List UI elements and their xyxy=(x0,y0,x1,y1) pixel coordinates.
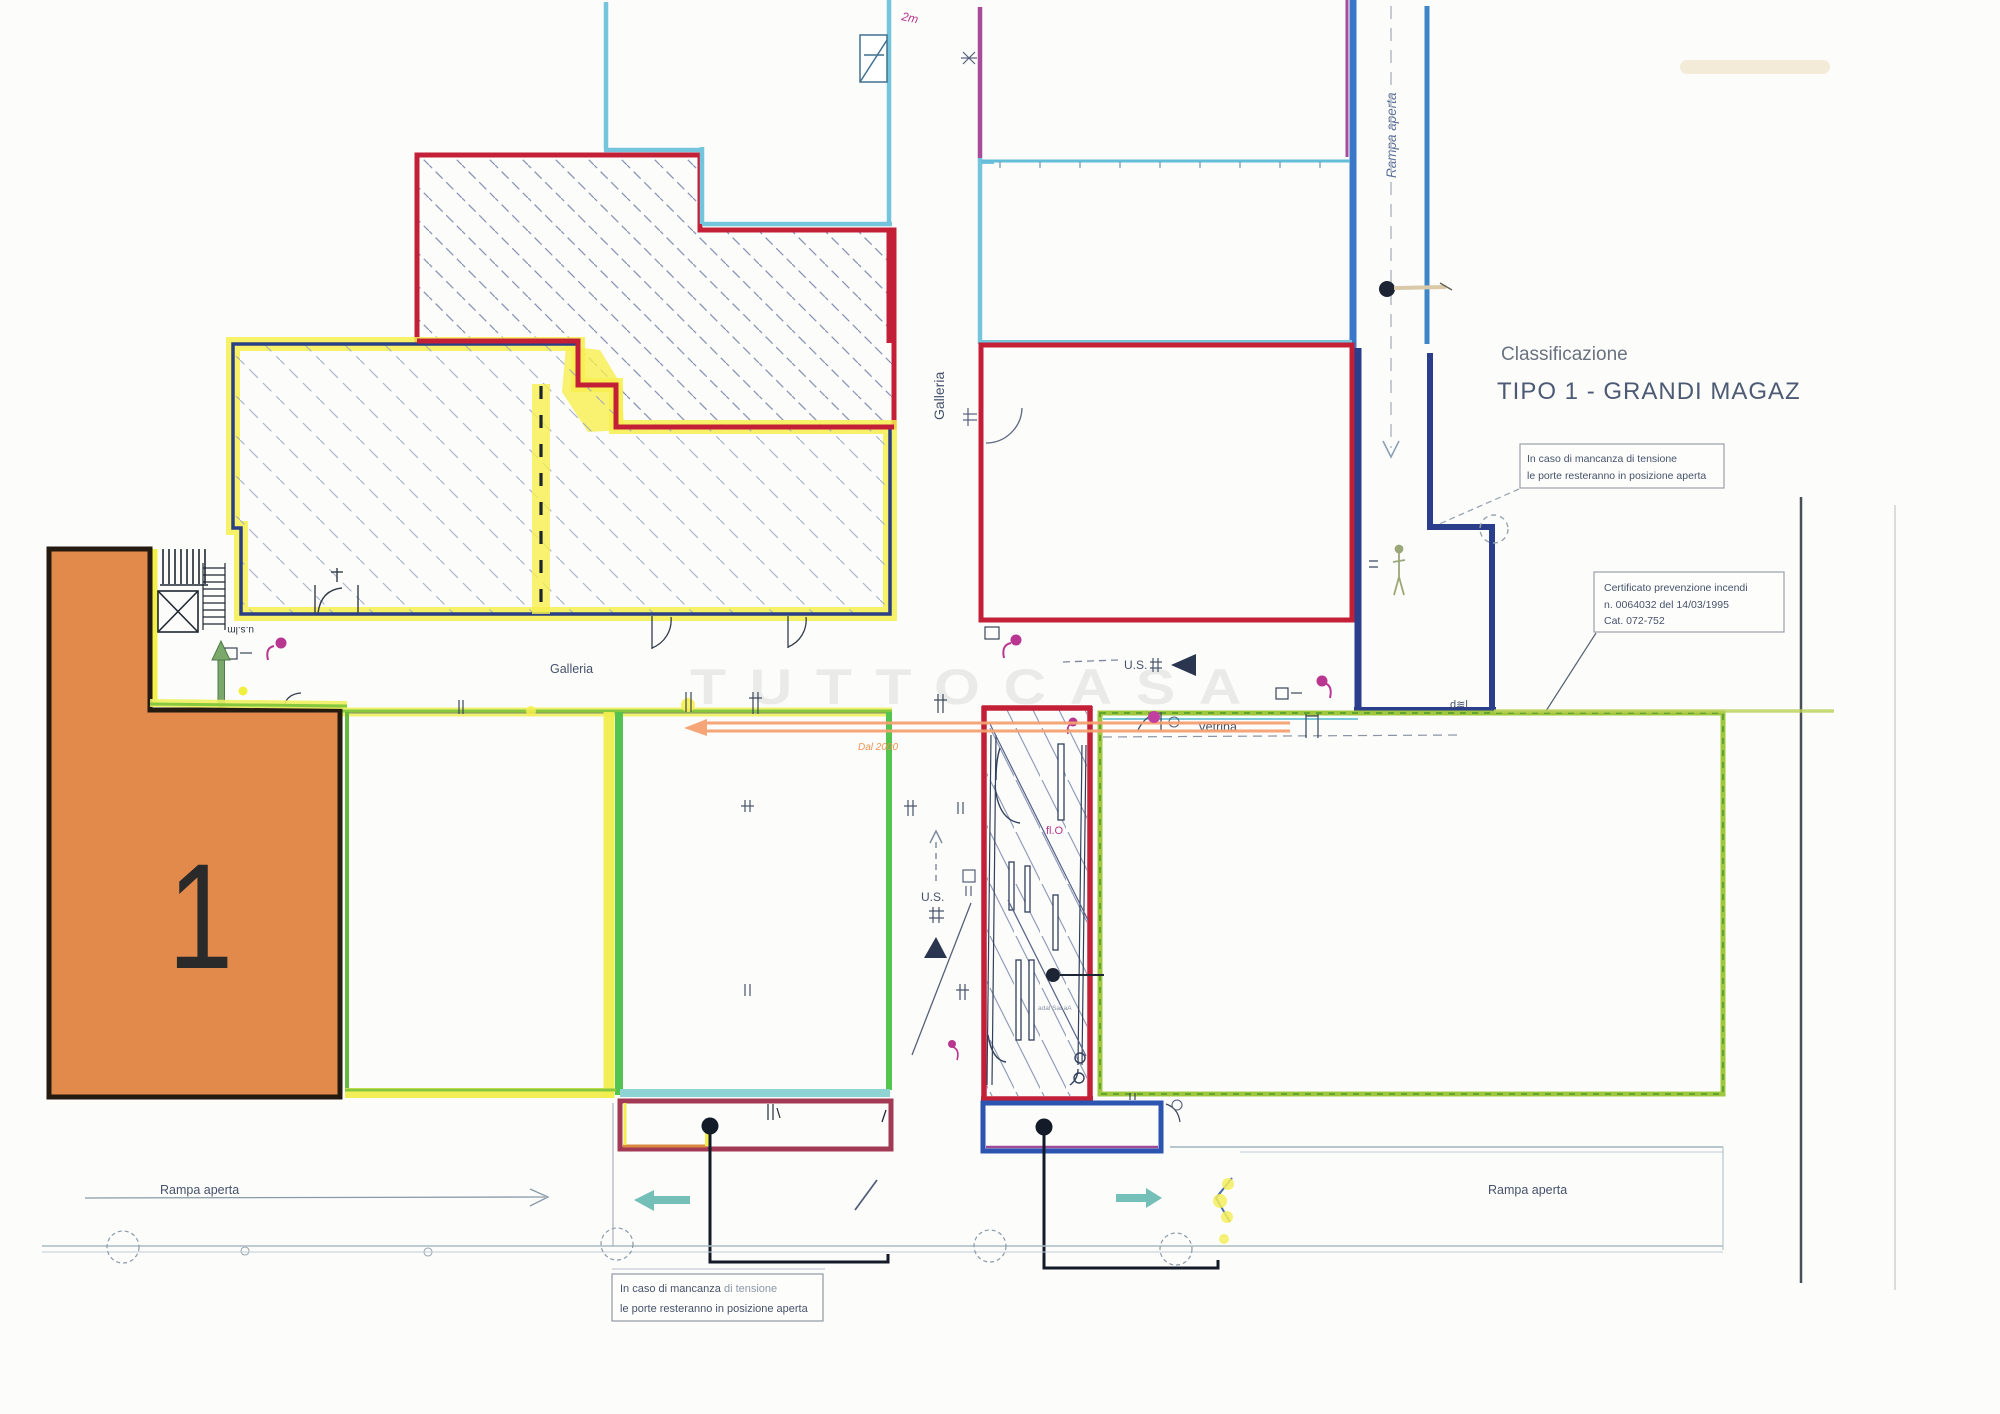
svg-text:Rampa aperta: Rampa aperta xyxy=(1488,1183,1567,1197)
svg-text:TIPO 1 - GRANDI MAGAZ: TIPO 1 - GRANDI MAGAZ xyxy=(1497,378,1801,405)
svg-text:Classificazione: Classificazione xyxy=(1501,344,1628,365)
svg-text:n. 0064032 del 14/03/1995: n. 0064032 del 14/03/1995 xyxy=(1604,599,1729,611)
svg-text:Dal 2000: Dal 2000 xyxy=(858,742,898,753)
svg-text:U.S.: U.S. xyxy=(921,890,944,904)
svg-text:In caso di mancanza di tension: In caso di mancanza di tensione xyxy=(620,1283,777,1295)
svg-text:le porte resteranno in posizio: le porte resteranno in posizione aperta xyxy=(620,1303,809,1315)
svg-text:adal SaLaA: adal SaLaA xyxy=(1038,1005,1072,1012)
svg-text:le porte resteranno in posizio: le porte resteranno in posizione aperta xyxy=(1527,470,1706,482)
svg-text:u.s.lm: u.s.lm xyxy=(227,624,254,635)
svg-text:Certificato prevenzione incend: Certificato prevenzione incendi xyxy=(1604,582,1748,594)
svg-text:In caso di mancanza di tension: In caso di mancanza di tensione xyxy=(1527,453,1677,465)
svg-text:fl.O: fl.O xyxy=(1046,825,1064,837)
svg-text:d≋l: d≋l xyxy=(1450,699,1468,711)
svg-text:Cat. 072-752: Cat. 072-752 xyxy=(1604,615,1665,627)
svg-text:Galleria: Galleria xyxy=(931,372,947,420)
svg-text:U.S.: U.S. xyxy=(1124,658,1147,672)
svg-text:1: 1 xyxy=(168,832,233,1000)
svg-text:Rampa aperta: Rampa aperta xyxy=(160,1183,239,1197)
svg-text:Galleria: Galleria xyxy=(550,662,593,676)
